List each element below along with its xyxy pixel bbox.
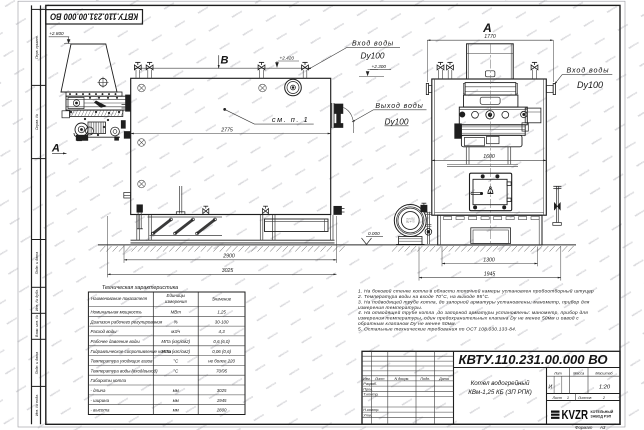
svg-text:измерения температуры, один п: измерения температуры, один предохраните… (358, 316, 579, 322)
svg-text:м3/ч: м3/ч (171, 329, 181, 334)
svg-text:МПа (кгс/см2): МПа (кгс/см2) (161, 349, 190, 354)
svg-text:Лист: Лист (374, 377, 385, 381)
svg-text:Вход воды: Вход воды (352, 40, 394, 48)
svg-text:Справ. №: Справ. № (35, 114, 39, 130)
svg-text:1. На боковой стенке котла в: 1. На боковой стенке котла в области топ… (358, 288, 594, 295)
svg-text:+2.300: +2.300 (372, 64, 387, 69)
svg-text:Подп. и дата: Подп. и дата (35, 352, 39, 375)
svg-text:мм: мм (173, 398, 179, 403)
svg-text:°С: °С (173, 368, 179, 373)
svg-text:N докум.: N докум. (394, 377, 409, 381)
svg-text:Гидравлическое сопротивление к: Гидравлическое сопротивление котла (91, 349, 172, 354)
svg-text:Габариты котла: Габариты котла (91, 378, 127, 383)
svg-text:Диапазон рабочего регулировани: Диапазон рабочего регулирования (90, 319, 163, 324)
svg-text:Единицы: Единицы (167, 293, 186, 298)
svg-text:70/95: 70/95 (216, 368, 228, 373)
svg-text:0,06 (0,6): 0,06 (0,6) (212, 349, 231, 354)
svg-text:1945: 1945 (217, 398, 227, 403)
svg-text:МПа (кгс/см2): МПа (кгс/см2) (161, 339, 190, 344)
svg-text:Листов: Листов (577, 396, 592, 400)
svg-text:30-100: 30-100 (215, 319, 229, 324)
svg-text:0,6 (6,0): 0,6 (6,0) (213, 339, 230, 344)
svg-text:1,25: 1,25 (217, 310, 226, 315)
svg-text:В: В (221, 55, 229, 67)
svg-text:Разраб.: Разраб. (363, 382, 377, 386)
svg-text:Наименование показателя: Наименование показателя (91, 296, 148, 301)
svg-text:4,3: 4,3 (219, 329, 226, 334)
svg-text:3. На подводящей трубе котла,: 3. На подводящей трубе котла, до запорно… (358, 298, 590, 305)
svg-text:тип.ВЦ: тип.ВЦ (406, 219, 415, 221)
svg-text:Формат: Формат (575, 425, 593, 430)
svg-text:Dy100: Dy100 (361, 50, 385, 60)
svg-text:%: % (174, 319, 178, 324)
svg-text:обратным клапаном Dу не менее: обратным клапаном Dу не менее 50мм. (358, 321, 456, 327)
svg-text:- длина: - длина (91, 388, 106, 393)
svg-text:5. Остальные технические треб: 5. Остальные технические требования по О… (358, 326, 517, 332)
svg-text:А: А (51, 143, 60, 155)
svg-text:3025: 3025 (217, 388, 227, 393)
svg-text:1945: 1945 (484, 271, 496, 277)
svg-text:КВТУ.110.231.00.000 ВО: КВТУ.110.231.00.000 ВО (50, 11, 138, 21)
svg-text:+2.420: +2.420 (280, 55, 295, 60)
svg-text:3025: 3025 (222, 268, 234, 274)
svg-text:1300: 1300 (483, 257, 495, 263)
svg-text:КВТУ.110.231.00.000 ВО: КВТУ.110.231.00.000 ВО (459, 353, 608, 367)
svg-text:Выход воды: Выход воды (375, 102, 423, 110)
svg-text:1:20: 1:20 (599, 385, 611, 391)
svg-text:2800: 2800 (216, 408, 227, 413)
svg-text:°С: °С (173, 359, 179, 364)
svg-text:Т.контр.: Т.контр. (363, 393, 378, 397)
svg-text:Н.контр.: Н.контр. (363, 408, 379, 412)
svg-text:Номинальная мощность: Номинальная мощность (91, 310, 143, 315)
svg-text:Инв. № подл.: Инв. № подл. (35, 394, 39, 416)
svg-text:не более 220: не более 220 (208, 359, 235, 364)
svg-text:KVZR: KVZR (562, 407, 589, 422)
svg-text:Расход воды: Расход воды (91, 329, 118, 334)
svg-text:А3: А3 (599, 425, 606, 430)
svg-text:измерения температуры.: измерения температуры. (358, 306, 423, 311)
svg-text:ЗАВОД РЭП: ЗАВОД РЭП (591, 415, 612, 419)
svg-text:КВм-1,25 КБ (ЗП РПК): КВм-1,25 КБ (ЗП РПК) (468, 389, 532, 396)
svg-text:Подп.: Подп. (420, 377, 430, 381)
svg-text:Температура уходящих газов: Температура уходящих газов (91, 359, 154, 364)
svg-text:измерения: измерения (165, 299, 188, 304)
svg-text:Техническая характеристика: Техническая характеристика (102, 285, 178, 291)
svg-text:Изм.: Изм. (363, 377, 371, 381)
svg-text:Перв. примен.: Перв. примен. (35, 35, 39, 59)
svg-text:- ширина: - ширина (91, 398, 110, 403)
svg-text:И: И (548, 385, 552, 391)
svg-text:МВт: МВт (171, 310, 182, 315)
svg-text:2. Температура воды на входе: 2. Температура воды на входе 70°С, на вы… (357, 294, 490, 300)
svg-text:Дата: Дата (438, 377, 449, 381)
svg-text:Температура воды (вход/выход): Температура воды (вход/выход) (91, 368, 159, 373)
svg-text:Пров.: Пров. (363, 387, 373, 391)
svg-text:мм: мм (173, 388, 179, 393)
svg-text:Лит: Лит (553, 371, 562, 375)
svg-text:Лист: Лист (552, 396, 563, 400)
svg-text:мм: мм (173, 408, 179, 413)
svg-text:1770: 1770 (484, 34, 496, 40)
svg-text:2775: 2775 (220, 128, 233, 134)
svg-text:+2.800: +2.800 (49, 31, 64, 36)
svg-text:Рабочее давление воды: Рабочее давление воды (91, 339, 141, 344)
svg-text:2900: 2900 (222, 254, 235, 260)
svg-text:Подп. и дата: Подп. и дата (35, 252, 39, 275)
svg-text:КОТЕЛЬНЫЙ: КОТЕЛЬНЫЙ (591, 410, 614, 414)
svg-text:Инв. № дубл.: Инв. № дубл. (35, 289, 39, 311)
svg-text:Вход воды: Вход воды (567, 66, 610, 75)
svg-text:ВЦ-4-70: ВЦ-4-70 (406, 221, 415, 224)
svg-text:Масштаб: Масштаб (595, 371, 613, 375)
svg-text:Dy100: Dy100 (577, 80, 603, 90)
svg-text:Взам. инв. №: Взам. инв. № (35, 315, 39, 337)
svg-text:- высота: - высота (91, 408, 110, 413)
svg-text:1: 1 (567, 395, 569, 400)
svg-text:см. п. 1: см. п. 1 (272, 115, 309, 124)
svg-text:0.000: 0.000 (368, 231, 380, 236)
svg-text:Значение: Значение (212, 297, 232, 302)
svg-text:1600: 1600 (483, 154, 495, 160)
svg-text:Котел водогрейный: Котел водогрейный (471, 380, 530, 387)
svg-text:Масса: Масса (573, 371, 584, 375)
svg-text:4. На отводящей трубе котла ,: 4. На отводящей трубе котла ,до запорной… (358, 309, 588, 316)
svg-text:Утв.: Утв. (363, 413, 372, 417)
svg-text:Dy100: Dy100 (385, 117, 409, 127)
svg-text:А: А (482, 21, 492, 35)
